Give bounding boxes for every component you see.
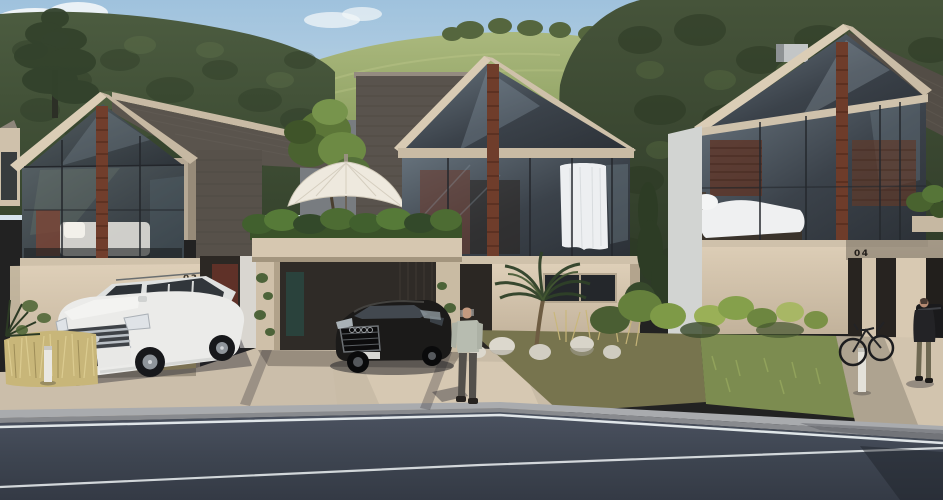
side-mirror xyxy=(138,296,147,302)
carport-opening xyxy=(876,258,896,338)
shirt xyxy=(456,320,480,353)
carport-pillar xyxy=(862,258,876,338)
brick-chimney-strip xyxy=(96,106,108,258)
scene-canvas: 03 xyxy=(0,0,943,500)
head xyxy=(462,308,473,319)
render-viewport: 03 xyxy=(0,0,943,500)
house-number-04: 04 xyxy=(854,249,870,259)
tie-beam xyxy=(398,148,634,158)
interior-door xyxy=(286,272,304,336)
jacket xyxy=(913,310,935,342)
brick-chimney-strip xyxy=(487,64,499,256)
grass-strip xyxy=(700,334,856,418)
